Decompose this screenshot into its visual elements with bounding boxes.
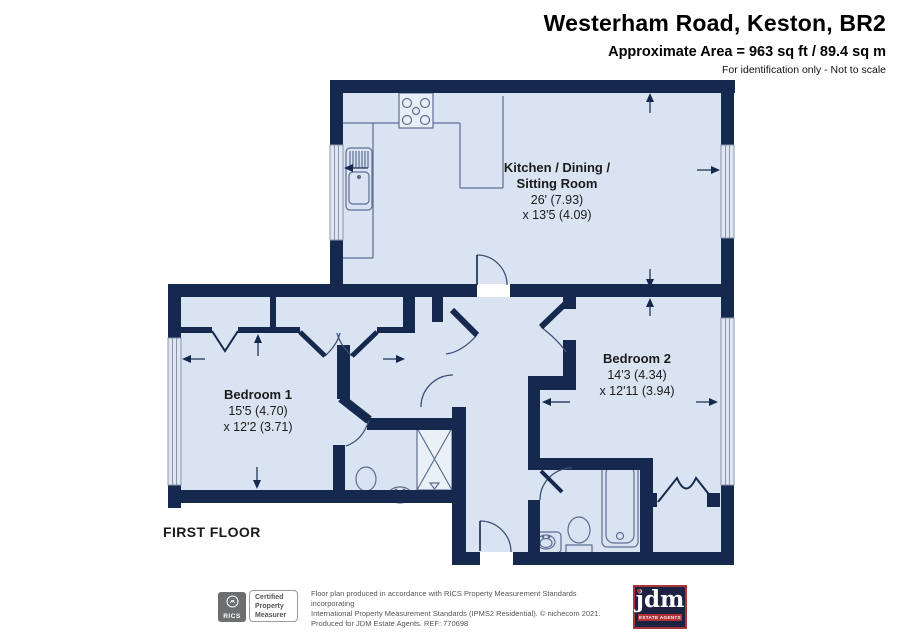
footer: RICS Certified Property Measurer Floor p… — [0, 583, 900, 633]
floorplan-drawing: Kitchen / Dining / Sitting Room 26' (7.9… — [0, 0, 900, 636]
kitchen-label-line2: Sitting Room — [517, 176, 598, 191]
kitchen-label-line1: Kitchen / Dining / — [504, 160, 611, 175]
rics-mark-icon — [226, 595, 239, 612]
disclaimer-note: For identification only - Not to scale — [544, 64, 886, 76]
bedroom2-window — [721, 318, 734, 485]
jdm-dot-icon — [637, 589, 641, 593]
cert-line3: Measurer — [255, 611, 297, 620]
jdm-subtitle-band: ESTATE AGENTS — [638, 614, 682, 621]
rics-logo: RICS — [218, 592, 246, 622]
footer-line3: Produced for JDM Estate Agents. REF: 770… — [311, 619, 621, 629]
kitchen-dim-line2: x 13'5 (4.09) — [522, 208, 591, 222]
footer-line1: Floor plan produced in accordance with R… — [311, 589, 621, 609]
bedroom1-window — [168, 338, 181, 485]
approximate-area: Approximate Area = 963 sq ft / 89.4 sq m — [544, 44, 886, 60]
jdm-wordmark: jdm — [636, 587, 685, 613]
shower-icon — [417, 428, 452, 490]
kitchen-dim-line1: 26' (7.93) — [531, 193, 583, 207]
jdm-estate-agents-logo: jdm ESTATE AGENTS — [633, 585, 687, 629]
bedroom2-dim-line2: x 12'11 (3.94) — [599, 384, 674, 398]
cert-line2: Property — [255, 602, 297, 611]
kitchen-left-window — [330, 145, 343, 240]
floorplan-page: Kitchen / Dining / Sitting Room 26' (7.9… — [0, 0, 900, 636]
certified-property-measurer-badge: Certified Property Measurer — [249, 590, 298, 622]
bedroom1-dim-line2: x 12'2 (3.71) — [223, 420, 292, 434]
cert-line1: Certified — [255, 593, 297, 602]
header: Westerham Road, Keston, BR2 Approximate … — [544, 10, 886, 76]
jdm-subtitle: ESTATE AGENTS — [639, 615, 681, 620]
hob-icon — [399, 93, 433, 128]
bedroom1-label: Bedroom 1 — [224, 387, 292, 402]
page-title: Westerham Road, Keston, BR2 — [544, 10, 886, 37]
footer-line2: International Property Measurement Stand… — [311, 609, 621, 619]
floor-label: FIRST FLOOR — [163, 524, 261, 540]
bedroom2-dim-line1: 14'3 (4.34) — [607, 368, 666, 382]
kitchen-right-window — [721, 145, 734, 238]
bedroom1-dim-line1: 15'5 (4.70) — [228, 404, 287, 418]
bedroom2-label: Bedroom 2 — [603, 351, 671, 366]
footer-disclaimer: Floor plan produced in accordance with R… — [311, 589, 621, 629]
rics-label: RICS — [223, 613, 241, 620]
